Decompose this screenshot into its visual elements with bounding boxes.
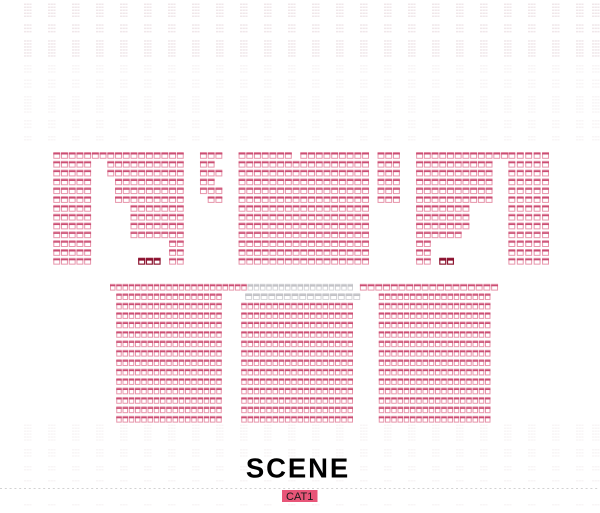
svg-text:CAT1: CAT1 <box>286 491 313 503</box>
svg-text:SCENE: SCENE <box>246 453 350 484</box>
